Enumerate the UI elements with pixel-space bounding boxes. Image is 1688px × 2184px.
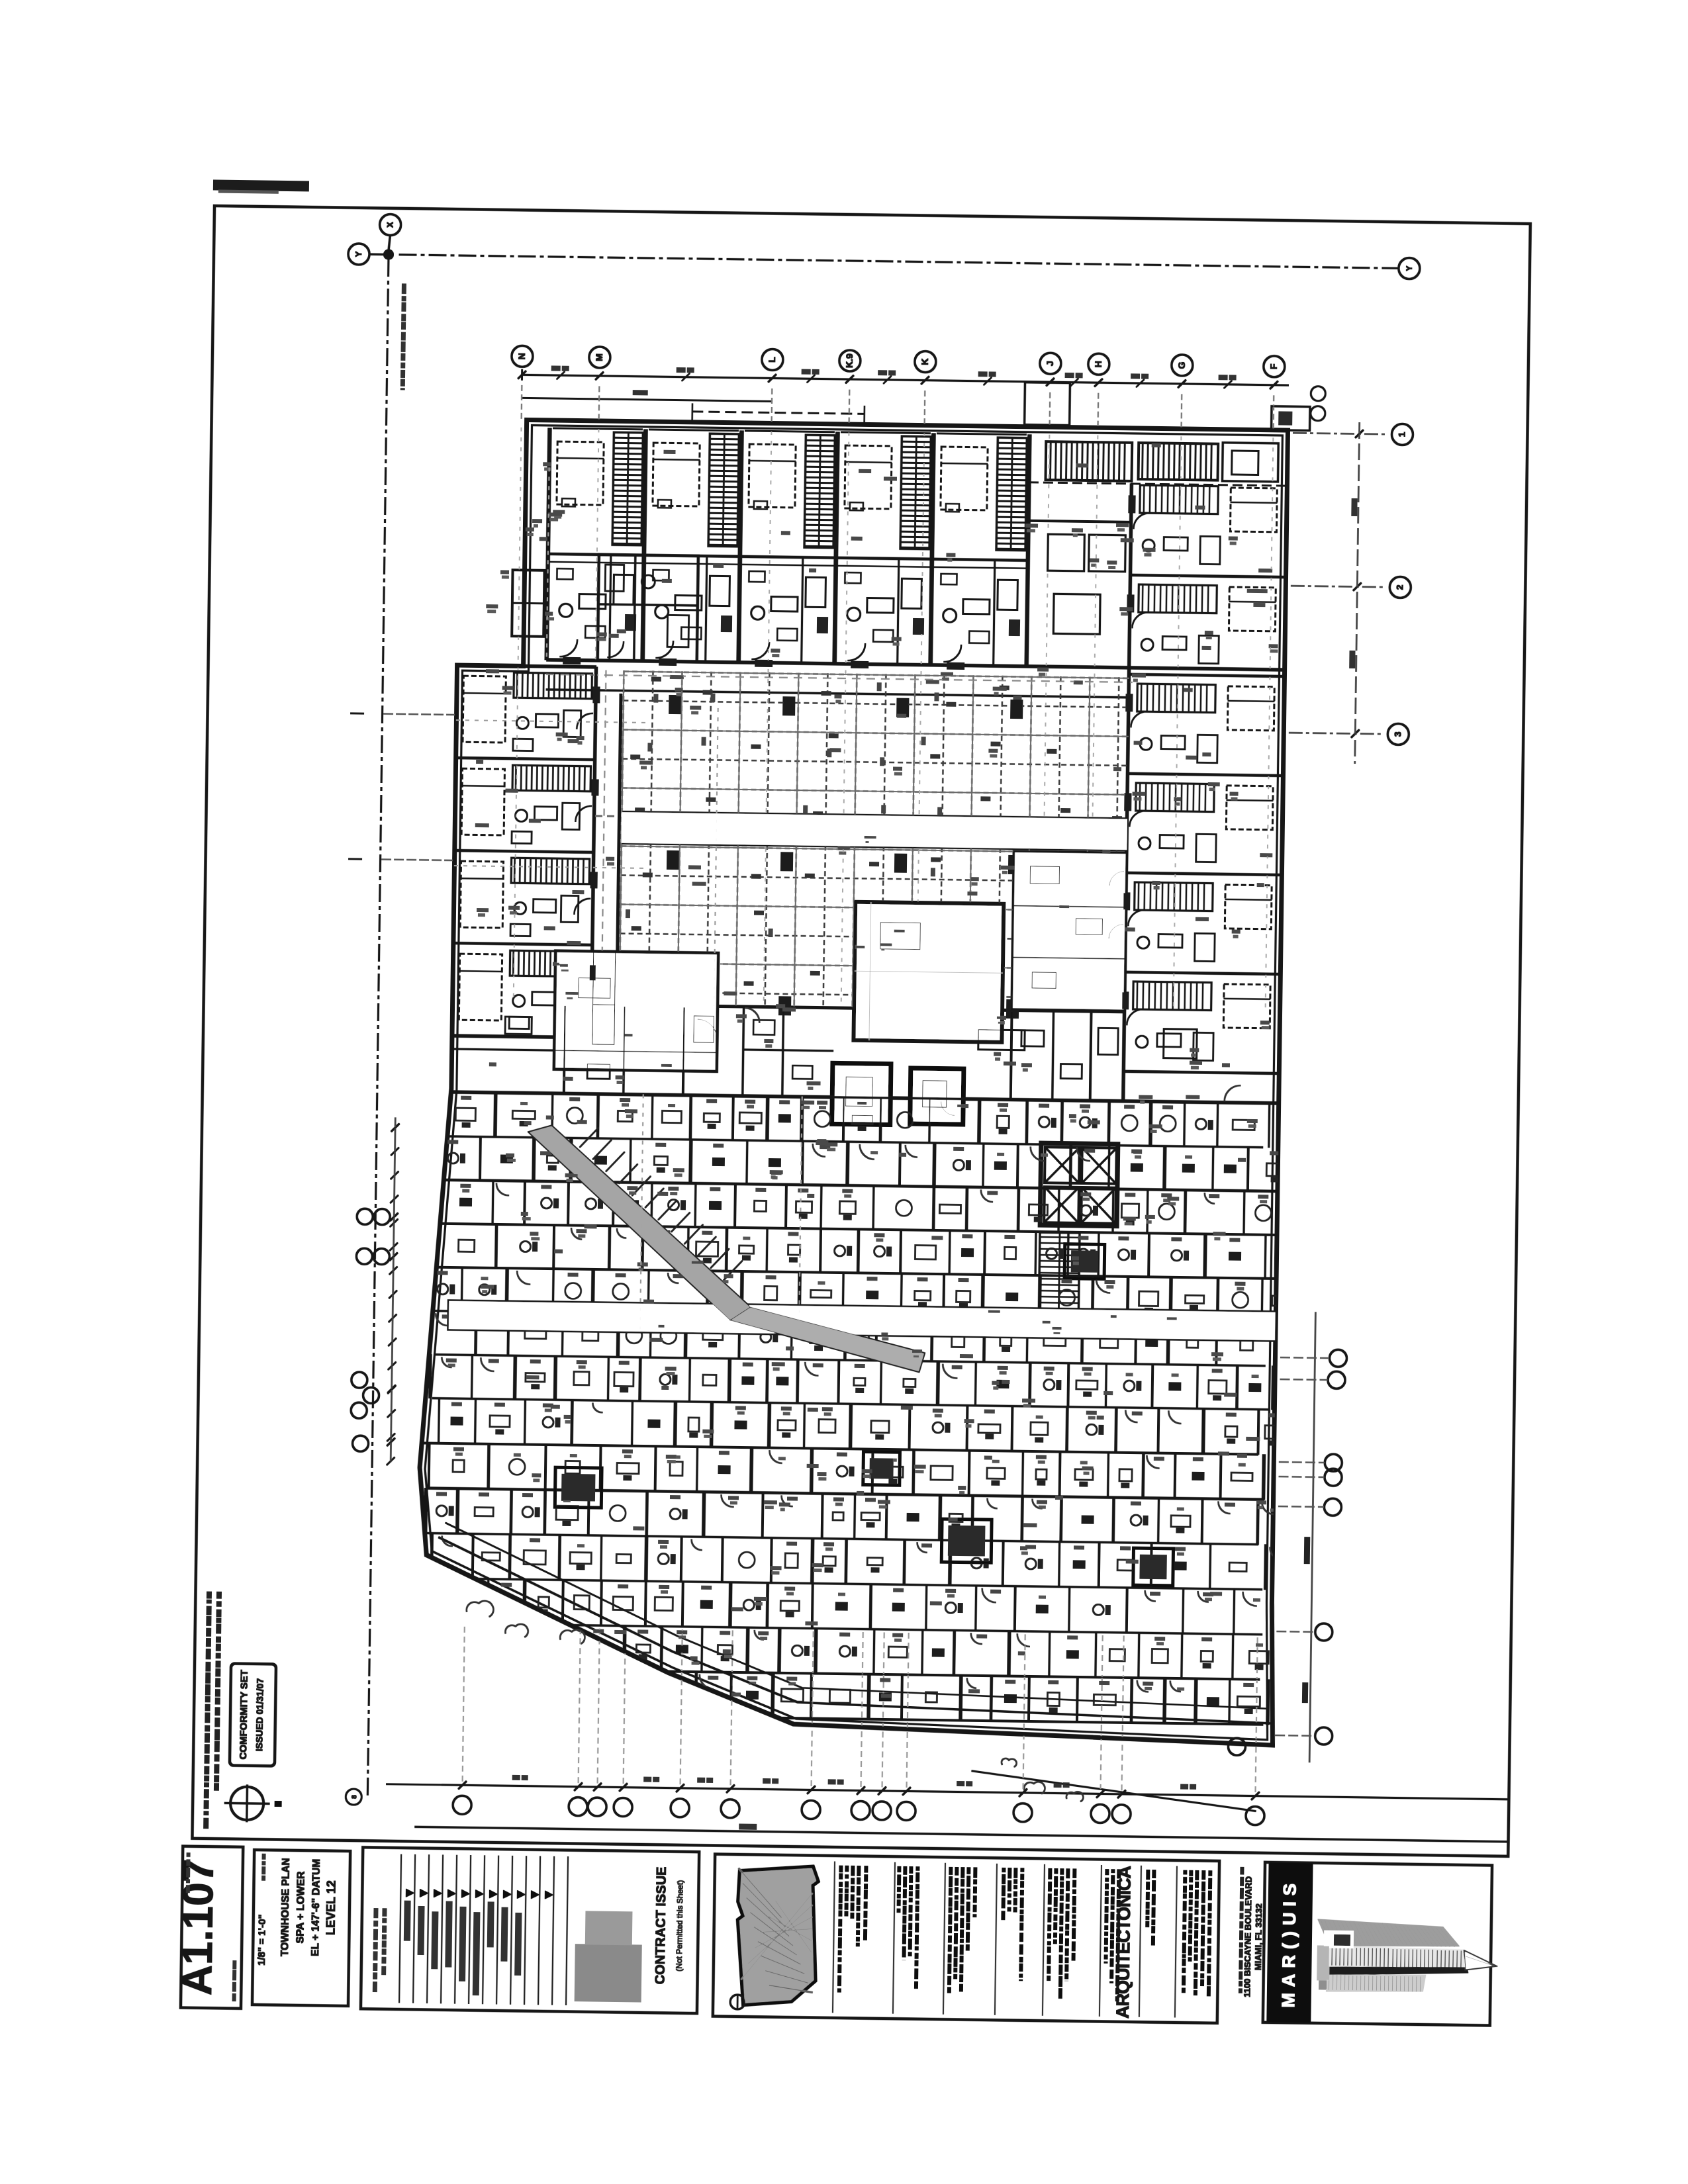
svg-text:1100 BISCAYNE BOULEVARD: 1100 BISCAYNE BOULEVARD: [1242, 1876, 1253, 1997]
svg-text:F: F: [1268, 363, 1279, 369]
svg-text:A1.107: A1.107: [173, 1858, 222, 1995]
svg-text:CONTRACT ISSUE: CONTRACT ISSUE: [653, 1866, 669, 1984]
svg-text:1: 1: [1396, 432, 1407, 437]
svg-text:SPA + LOWER: SPA + LOWER: [295, 1871, 306, 1944]
svg-text:3: 3: [1392, 731, 1403, 737]
svg-text:EL + 147'-6" DATUM: EL + 147'-6" DATUM: [310, 1859, 322, 1956]
svg-text:Y: Y: [353, 251, 363, 257]
svg-text:L: L: [767, 357, 777, 363]
svg-text:COMFORMITY SET: COMFORMITY SET: [238, 1670, 250, 1760]
svg-text:2: 2: [1394, 584, 1405, 590]
svg-text:8: 8: [351, 1795, 358, 1799]
svg-text:ARQUITECTONICA: ARQUITECTONICA: [1113, 1866, 1135, 2019]
svg-text:MAR()UIS: MAR()UIS: [1278, 1878, 1300, 2008]
svg-text:X: X: [385, 222, 395, 228]
svg-text:1/8" = 1'-0": 1/8" = 1'-0": [256, 1914, 268, 1966]
svg-text:M: M: [594, 353, 604, 361]
svg-text:(Not Permitted this Sheet): (Not Permitted this Sheet): [675, 1880, 685, 1972]
svg-text:Y: Y: [1405, 265, 1414, 271]
svg-text:LEVEL 12: LEVEL 12: [324, 1880, 338, 1935]
svg-text:TOWNHOUSE PLAN: TOWNHOUSE PLAN: [279, 1858, 292, 1956]
svg-text:K.9: K.9: [844, 353, 855, 368]
svg-text:N: N: [516, 353, 527, 359]
svg-text:J: J: [1045, 361, 1055, 366]
svg-text:H: H: [1093, 361, 1103, 367]
svg-text:G: G: [1176, 361, 1187, 369]
svg-text:MIAMI, FL 33132: MIAMI, FL 33132: [1253, 1903, 1264, 1970]
svg-text:ISSUED 01/31/07: ISSUED 01/31/07: [254, 1678, 265, 1752]
svg-text:K: K: [919, 358, 930, 365]
